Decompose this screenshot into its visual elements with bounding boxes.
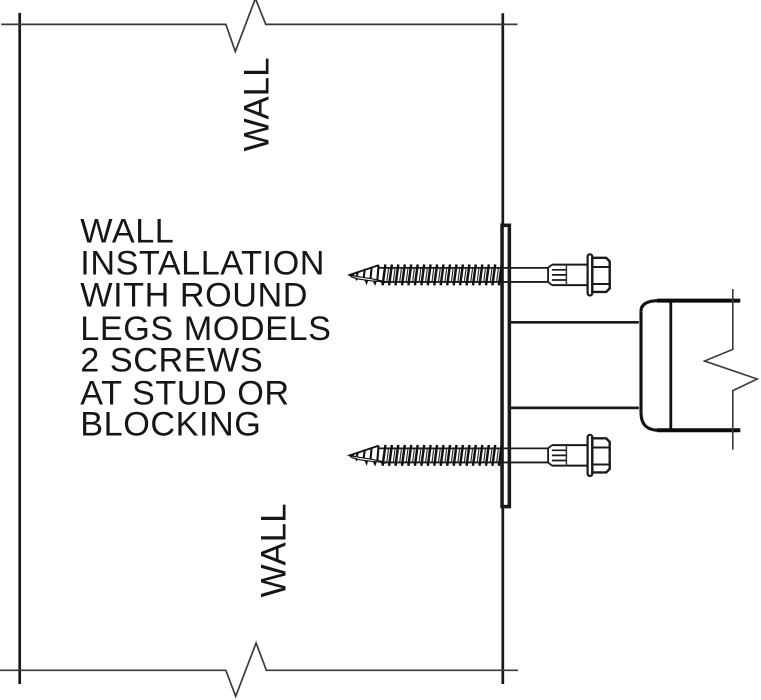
svg-text:WITH ROUND: WITH ROUND: [80, 276, 308, 314]
svg-text:WALL: WALL: [238, 57, 277, 151]
svg-text:BLOCKING: BLOCKING: [80, 406, 261, 444]
svg-text:WALL: WALL: [254, 503, 293, 597]
